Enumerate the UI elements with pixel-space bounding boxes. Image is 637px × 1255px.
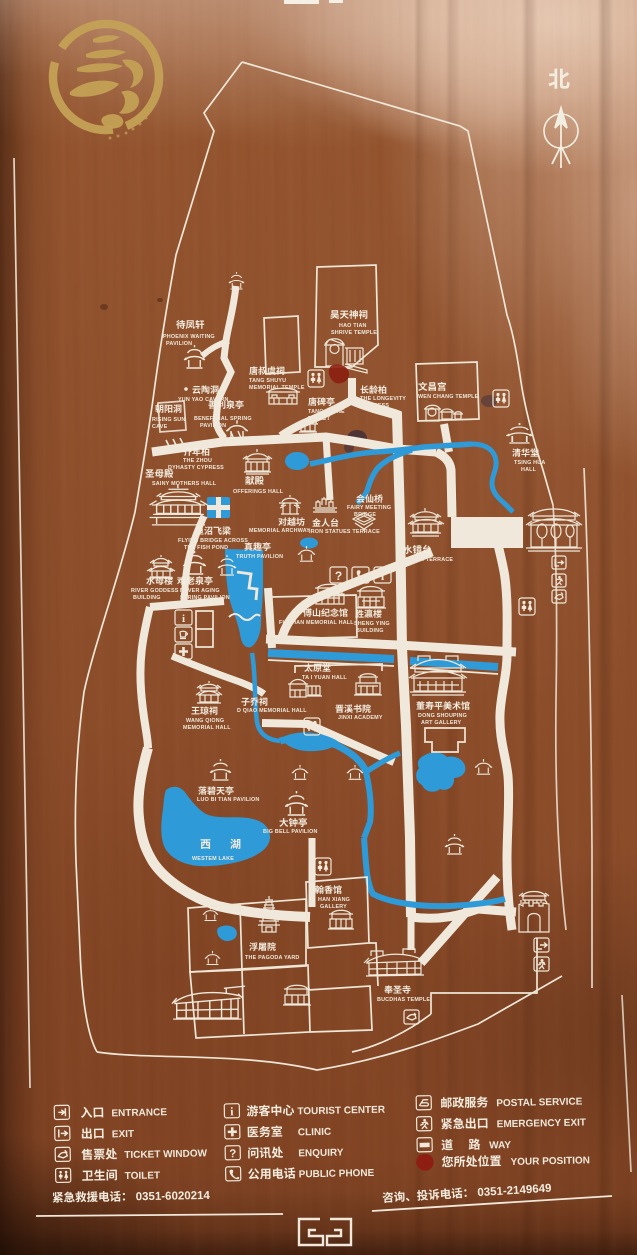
svg-text:BUILDING: BUILDING — [133, 595, 161, 601]
svg-text:董寿平美术馆: 董寿平美术馆 — [416, 699, 470, 712]
svg-text:傅山纪念馆: 傅山纪念馆 — [303, 606, 348, 619]
svg-text:您所处位置: 您所处位置 — [441, 1152, 501, 1170]
svg-text:善利泉亭: 善利泉亭 — [208, 398, 244, 411]
svg-text:金人台: 金人台 — [312, 516, 339, 529]
svg-text:POSTAL SERVICE: POSTAL SERVICE — [496, 1096, 583, 1109]
svg-text:待凤轩: 待凤轩 — [176, 317, 205, 331]
svg-text:TANG SHUYU: TANG SHUYU — [249, 378, 286, 384]
svg-text:FU SHAN MEMORIAL HALL: FU SHAN MEMORIAL HALL — [279, 620, 354, 626]
svg-text:云陶洞: 云陶洞 — [192, 383, 219, 396]
svg-text:医务室: 医务室 — [247, 1123, 283, 1141]
svg-text:ART GALLERY: ART GALLERY — [421, 720, 462, 726]
svg-text:游客中心: 游客中心 — [246, 1101, 294, 1119]
svg-text:昊天神祠: 昊天神祠 — [330, 307, 368, 321]
svg-text:胜瀛楼: 胜瀛楼 — [355, 607, 382, 620]
svg-text:THE FISH POND: THE FISH POND — [184, 545, 228, 551]
svg-text:BRIDGE: BRIDGE — [354, 512, 376, 518]
svg-text:PUBLIC PHONE: PUBLIC PHONE — [299, 1168, 375, 1181]
svg-text:LUO BI TIAN PAVILION: LUO BI TIAN PAVILION — [197, 797, 260, 803]
svg-text:i: i — [182, 613, 185, 625]
svg-text:献殿: 献殿 — [245, 473, 265, 487]
svg-text:TA I YUAN HALL: TA I YUAN HALL — [302, 675, 347, 681]
svg-text:公用电话: 公用电话 — [248, 1164, 296, 1182]
svg-text:出口: 出口 — [81, 1124, 105, 1141]
svg-text:EMERGENCY EXIT: EMERGENCY EXIT — [497, 1117, 586, 1130]
svg-text:长龄柏: 长龄柏 — [360, 383, 387, 396]
svg-text:DONG SHOUPING: DONG SHOUPING — [418, 713, 467, 719]
svg-text:BIG BELL PAVILION: BIG BELL PAVILION — [263, 829, 318, 835]
svg-text:水镜台: 水镜台 — [403, 542, 432, 556]
svg-text:道 路: 道 路 — [441, 1135, 487, 1153]
svg-text:RISING SUN: RISING SUN — [152, 417, 185, 423]
svg-text:晋溪书院: 晋溪书院 — [335, 702, 371, 715]
svg-text:问讯处: 问讯处 — [247, 1144, 283, 1162]
svg-text:D QIAO MEMORIAL HALL: D QIAO MEMORIAL HALL — [237, 708, 307, 714]
svg-text:卫生间: 卫生间 — [82, 1166, 118, 1184]
svg-text:NEVER AGING: NEVER AGING — [180, 588, 220, 594]
svg-text:THE PAGODA YARD: THE PAGODA YARD — [245, 955, 300, 961]
svg-text:大钟亭: 大钟亭 — [279, 815, 308, 829]
svg-text:PHOENIX WAITING: PHOENIX WAITING — [163, 334, 215, 340]
svg-text:CYPRESS: CYPRESS — [362, 403, 389, 409]
svg-text:THE LONGEVITY: THE LONGEVITY — [360, 396, 406, 402]
svg-text:ENTRANCE: ENTRANCE — [111, 1107, 167, 1119]
svg-text:齐年柏: 齐年柏 — [183, 445, 210, 458]
svg-text:北: 北 — [548, 62, 570, 94]
svg-text:?: ? — [229, 1148, 236, 1160]
svg-text:YOUR POSITION: YOUR POSITION — [510, 1155, 590, 1168]
svg-text:i: i — [230, 1104, 234, 1118]
svg-text:CAVE: CAVE — [152, 424, 168, 430]
svg-text:OFFERINGS HALL: OFFERINGS HALL — [233, 489, 284, 495]
svg-text:CLINIC: CLINIC — [298, 1127, 332, 1139]
svg-text:HAO TIAN: HAO TIAN — [339, 323, 367, 329]
svg-text:朝阳洞: 朝阳洞 — [155, 402, 182, 415]
svg-text:王琼祠: 王琼祠 — [191, 704, 218, 717]
svg-text:落碧天亭: 落碧天亭 — [198, 784, 234, 797]
svg-text:圣母殿: 圣母殿 — [145, 466, 174, 480]
svg-text:MEMORIAL ARCHWAY: MEMORIAL ARCHWAY — [249, 528, 310, 534]
svg-text:MEMORIAL TEMPLE: MEMORIAL TEMPLE — [249, 385, 305, 391]
svg-text:TABLET: TABLET — [308, 416, 331, 422]
svg-text:MEMORIAL HALL: MEMORIAL HALL — [183, 725, 231, 731]
svg-text:TOILET: TOILET — [125, 1170, 161, 1182]
svg-text:BENEFICIAL SPRING: BENEFICIAL SPRING — [194, 416, 252, 422]
svg-text:ENQUIRY: ENQUIRY — [298, 1147, 344, 1159]
svg-text:会仙桥: 会仙桥 — [356, 492, 383, 505]
svg-text:水母楼: 水母楼 — [146, 574, 173, 587]
svg-text:PAVILION: PAVILION — [166, 341, 192, 347]
svg-text:售票处: 售票处 — [81, 1145, 117, 1163]
svg-text:WESTEM LAKE: WESTEM LAKE — [192, 856, 234, 862]
svg-text:HAN XIANG: HAN XIANG — [318, 897, 350, 903]
svg-text:GALLERY: GALLERY — [320, 904, 347, 910]
svg-text:BUCDHAS TEMPLE: BUCDHAS TEMPLE — [377, 997, 430, 1003]
svg-text:WEN CHANG TEMPLE: WEN CHANG TEMPLE — [418, 394, 479, 400]
svg-text:子乔祠: 子乔祠 — [241, 695, 268, 708]
svg-text:HALL: HALL — [521, 467, 537, 473]
svg-text:对越坊: 对越坊 — [278, 515, 305, 528]
svg-text:文昌宫: 文昌宫 — [418, 379, 447, 393]
svg-text:SPRING PAVILION: SPRING PAVILION — [180, 595, 230, 601]
svg-text:TRUTH PAVILION: TRUTH PAVILION — [236, 554, 283, 560]
svg-text:浮屠院: 浮屠院 — [249, 940, 276, 953]
svg-text:翰香馆: 翰香馆 — [315, 883, 342, 896]
svg-text:THE ZHOU: THE ZHOU — [183, 458, 212, 464]
svg-text:西 湖: 西 湖 — [200, 836, 249, 852]
svg-text:EXIT: EXIT — [112, 1129, 134, 1140]
svg-text:RIVER GODDESS: RIVER GODDESS — [131, 588, 179, 594]
svg-text:JINXI ACADEMY: JINXI ACADEMY — [338, 715, 383, 721]
svg-text:PAVILION: PAVILION — [200, 423, 226, 429]
svg-text:WAY: WAY — [489, 1140, 511, 1151]
svg-text:BUILDING: BUILDING — [356, 628, 384, 634]
svg-text:SAINY MOTHERS HALL: SAINY MOTHERS HALL — [152, 481, 217, 487]
svg-text:TICKET WINDOW: TICKET WINDOW — [124, 1148, 208, 1161]
svg-text:奉圣寺: 奉圣寺 — [384, 983, 411, 996]
svg-text:WANG QIONG: WANG QIONG — [186, 718, 224, 724]
svg-text:FLYING BRIDGE ACROSS: FLYING BRIDGE ACROSS — [178, 538, 248, 544]
svg-text:SHENG YING: SHENG YING — [354, 621, 390, 627]
svg-text:清华堂: 清华堂 — [512, 446, 539, 459]
svg-text:真趣亭: 真趣亭 — [244, 540, 271, 553]
svg-text:唐叔虞祠: 唐叔虞祠 — [249, 364, 285, 377]
svg-text:TSING HUA: TSING HUA — [514, 460, 545, 466]
svg-text:FAIRY MEETING: FAIRY MEETING — [347, 505, 391, 511]
svg-text:紧急出口: 紧急出口 — [441, 1114, 489, 1132]
svg-text:DYHASTY CYPRESS: DYHASTY CYPRESS — [168, 465, 224, 471]
svg-text:TANG STONE: TANG STONE — [308, 409, 345, 415]
svg-text:唐碑亭: 唐碑亭 — [308, 395, 335, 408]
svg-text:邮政服务: 邮政服务 — [440, 1093, 488, 1111]
svg-text:?: ? — [335, 569, 342, 583]
svg-text:入口: 入口 — [80, 1103, 104, 1120]
svg-text:太原堂: 太原堂 — [304, 661, 331, 674]
svg-text:TOURIST CENTER: TOURIST CENTER — [297, 1105, 386, 1118]
svg-text:IRON STATUES TERRACE: IRON STATUES TERRACE — [309, 529, 380, 535]
svg-text:SHRIVE TEMPLE: SHRIVE TEMPLE — [331, 330, 377, 336]
svg-text:紧急救援电话： 0351-6020214: 紧急救援电话： 0351-6020214 — [52, 1187, 211, 1206]
svg-text:鱼沼飞梁: 鱼沼飞梁 — [195, 524, 231, 537]
svg-text:MIRROR TERRACE: MIRROR TERRACE — [401, 557, 453, 563]
svg-text:难老泉亭: 难老泉亭 — [177, 574, 213, 587]
